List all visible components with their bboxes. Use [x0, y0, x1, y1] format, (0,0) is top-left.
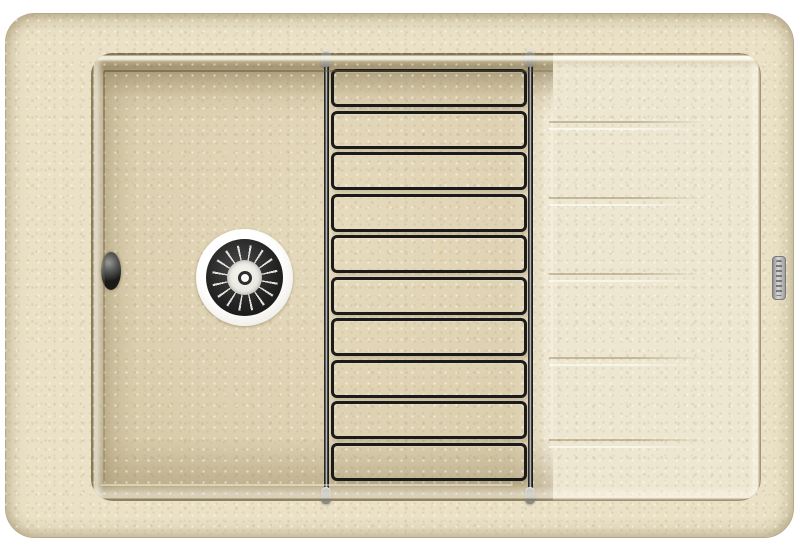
wire-dish-rack: [320, 50, 538, 504]
rack-rung: [331, 111, 527, 149]
rack-rung: [331, 194, 527, 232]
rack-rungs: [331, 69, 527, 494]
drainboard-groove: [549, 121, 704, 130]
rack-rung: [331, 69, 527, 107]
basin-bottom-lip: [101, 484, 513, 486]
drain-center-hole: [238, 271, 252, 285]
brand-badge: [772, 256, 786, 300]
rack-rung: [331, 277, 527, 315]
rack-rung: [331, 401, 527, 439]
rack-rung: [331, 318, 527, 356]
rack-cap-top-right: [525, 50, 535, 67]
rack-rung: [331, 360, 527, 398]
drainboard-groove: [549, 273, 704, 282]
basin-top-ridge: [104, 70, 553, 72]
rack-cap-top-left: [321, 50, 331, 67]
drainboard-groove: [549, 197, 704, 206]
rack-rung: [331, 152, 527, 190]
rack-rung: [331, 235, 527, 273]
basin-left-ridge: [103, 71, 105, 485]
drainboard-groove: [549, 439, 704, 448]
rack-rail-right: [528, 62, 533, 494]
drain-assembly: [196, 229, 293, 326]
rack-rung: [331, 443, 527, 481]
rack-rail-left: [324, 62, 329, 494]
drainboard-groove: [549, 357, 704, 366]
rack-cap-bottom-left: [321, 487, 331, 504]
